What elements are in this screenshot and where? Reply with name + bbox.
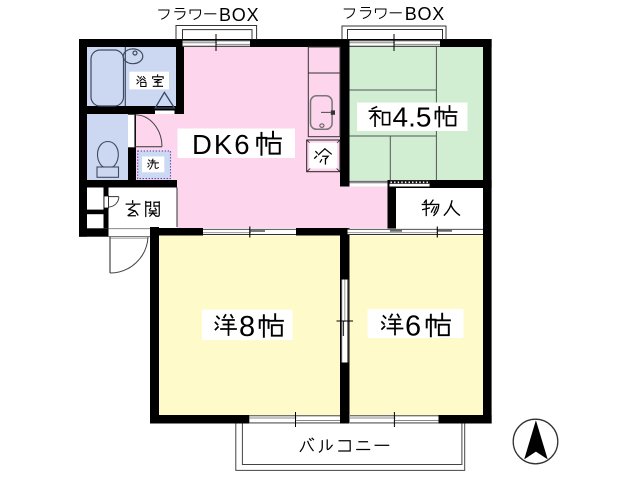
svg-text:6: 6: [405, 311, 421, 343]
svg-text:DK6: DK6: [192, 129, 252, 160]
svg-text:BOX: BOX: [219, 5, 259, 25]
svg-text:4.5: 4.5: [393, 102, 432, 133]
svg-text:BOX: BOX: [405, 4, 445, 24]
svg-text:8: 8: [239, 311, 255, 343]
